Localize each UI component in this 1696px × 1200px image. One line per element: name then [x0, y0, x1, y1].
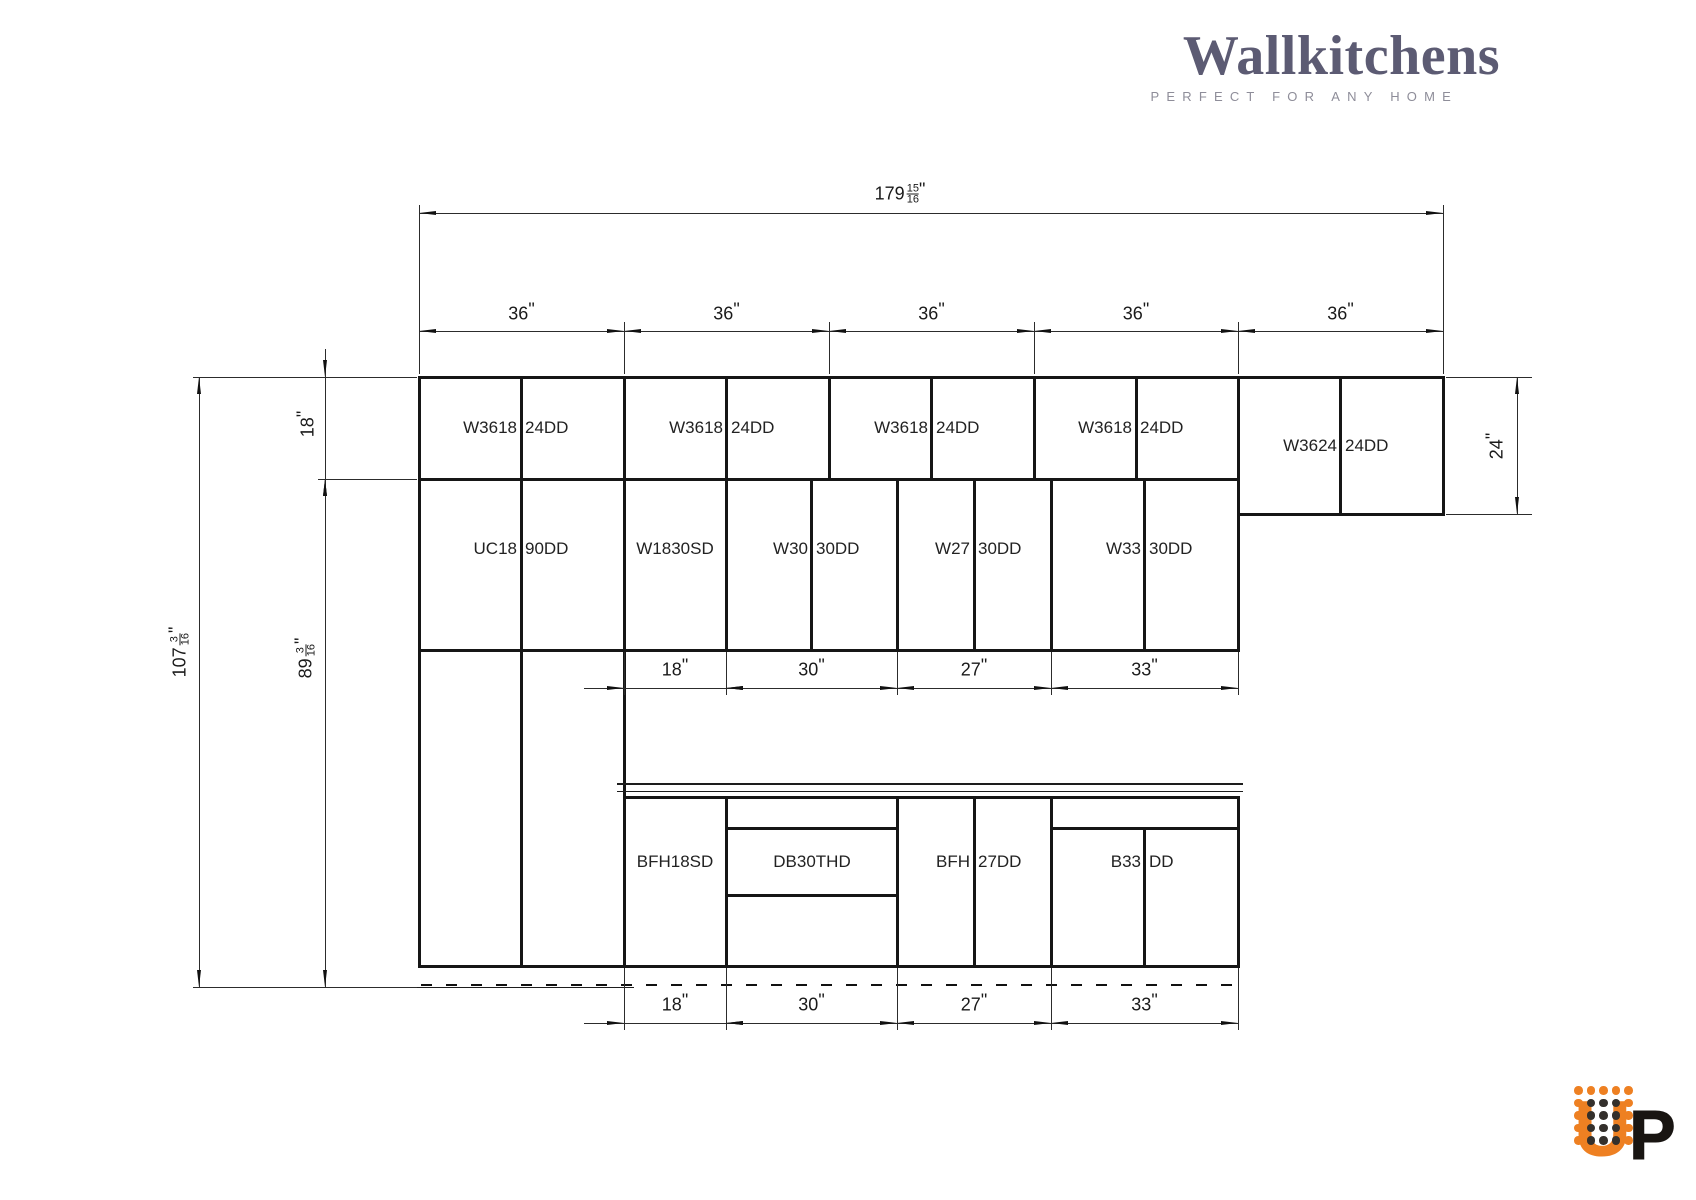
- up-logo-dot: [1612, 1111, 1621, 1120]
- cabinet-label: W30: [648, 539, 808, 559]
- dimension-arrow: [1515, 377, 1519, 394]
- dimension-arrow: [726, 1021, 743, 1025]
- dimension-arrow: [1221, 686, 1238, 690]
- cabinet-door-divider: [1143, 479, 1146, 650]
- up-logo-dot: [1574, 1136, 1583, 1145]
- dimension-arrow: [1426, 329, 1443, 333]
- countertop-line: [617, 783, 1243, 785]
- cabinet-label: 24DD: [1140, 418, 1300, 438]
- dimension-line: [419, 213, 1443, 214]
- dimension-arrow: [726, 686, 743, 690]
- extension-line: [199, 377, 200, 987]
- cabinet-label: W3618: [768, 418, 928, 438]
- dimension-arrow: [1034, 686, 1051, 690]
- cabinet-box: [623, 796, 728, 968]
- dimension-arrow: [1051, 1021, 1068, 1025]
- countertop-line: [617, 791, 1243, 792]
- up-logo-dot: [1599, 1099, 1608, 1108]
- cabinet-label: W3618: [563, 418, 723, 438]
- up-logo-dot: [1587, 1124, 1596, 1133]
- up-logo-dot: [1612, 1124, 1621, 1133]
- dimension-arrow: [323, 360, 327, 377]
- cabinet-door-divider: [520, 377, 523, 966]
- cabinet-label: DD: [1149, 852, 1309, 872]
- dimension-arrow: [323, 970, 327, 987]
- dimension-arrow: [1017, 329, 1034, 333]
- up-logo-dot: [1574, 1086, 1583, 1095]
- cabinet-door-divider: [1339, 377, 1342, 514]
- dimension-arrow: [897, 1021, 914, 1025]
- dimension-arrow: [607, 329, 624, 333]
- dimension-arrow: [812, 329, 829, 333]
- up-logo-dot: [1612, 1086, 1621, 1095]
- cabinet-label: UC18: [357, 539, 517, 559]
- cabinet-door-divider: [810, 479, 813, 650]
- cabinet-label: 30DD: [1149, 539, 1309, 559]
- up-logo-dot: [1599, 1111, 1608, 1120]
- cabinet-label: W3624: [1177, 436, 1337, 456]
- up-logo-dot: [1587, 1086, 1596, 1095]
- cabinet-door-divider: [973, 797, 976, 966]
- dimension-arrow: [897, 686, 914, 690]
- cabinet-label: BFH: [810, 852, 970, 872]
- dimension-arrow: [607, 1021, 624, 1025]
- up-logo-dot: [1599, 1086, 1608, 1095]
- dimension-arrow: [1238, 329, 1255, 333]
- dimension-arrow: [829, 329, 846, 333]
- dimension-arrow: [1051, 686, 1068, 690]
- page: { "brand": { "name": "Wallkitchens", "ta…: [0, 0, 1696, 1200]
- up-logo-dot: [1624, 1111, 1633, 1120]
- dimension-arrow: [197, 970, 201, 987]
- extension-line: [1517, 377, 1518, 514]
- cabinet-label: W33: [981, 539, 1141, 559]
- extension-line: [419, 205, 420, 374]
- cabinet-door-divider: [1143, 828, 1146, 966]
- cabinet-door-divider: [973, 479, 976, 650]
- extension-line: [325, 377, 326, 479]
- dimension-line: [193, 987, 417, 988]
- up-logo-dot: [1574, 1124, 1583, 1133]
- up-logo-dot: [1624, 1124, 1633, 1133]
- dimension-arrow: [419, 329, 436, 333]
- up-logo-dot: [1587, 1099, 1596, 1108]
- dimension-arrow: [1221, 1021, 1238, 1025]
- cabinet-label: 24DD: [1345, 436, 1505, 456]
- up-logo-dot: [1574, 1111, 1583, 1120]
- up-logo-dot: [1599, 1124, 1608, 1133]
- up-logo-dot: [1624, 1099, 1633, 1108]
- cabinet-label: W3618: [972, 418, 1132, 438]
- up-logo-dot: [1624, 1086, 1633, 1095]
- up-logo-dot: [1587, 1111, 1596, 1120]
- dimension-arrow: [607, 686, 624, 690]
- cabinet-door-divider: [1135, 377, 1138, 479]
- dimension-arrow: [419, 211, 436, 215]
- cabinet-door-divider: [725, 377, 728, 479]
- cabinet-label: W3618: [357, 418, 517, 438]
- cabinet-box: [725, 796, 899, 968]
- cabinet-drawer-line: [419, 478, 624, 481]
- cabinet-drawer-line: [419, 649, 624, 652]
- dimension-arrow: [624, 329, 641, 333]
- cabinet-label: W27: [810, 539, 970, 559]
- up-logo-dot: [1574, 1099, 1583, 1108]
- dimension-arrow: [1034, 329, 1051, 333]
- dimension-arrow: [1034, 1021, 1051, 1025]
- cabinet-box: [623, 478, 728, 652]
- extension-line: [325, 479, 326, 987]
- up-logo-dots: [1563, 1056, 1696, 1191]
- dimension-line: [419, 331, 1443, 332]
- dimension-arrow: [1515, 497, 1519, 514]
- dimension-line: [193, 377, 417, 378]
- cabinet-drawer-line: [726, 894, 897, 897]
- cabinet-door-divider: [930, 377, 933, 479]
- dimension-arrow: [323, 479, 327, 496]
- up-logo-dot: [1587, 1136, 1596, 1145]
- dimension-line: [1446, 514, 1532, 515]
- cabinet-drawer-line: [1051, 827, 1238, 830]
- cabinet-drawer-line: [726, 827, 897, 830]
- up-logo: U P: [1563, 1056, 1696, 1191]
- up-logo-dot: [1599, 1136, 1608, 1145]
- dimension-arrow: [1426, 211, 1443, 215]
- brand-tagline: PERFECT FOR ANY HOME: [1151, 89, 1501, 104]
- up-logo-dot: [1612, 1099, 1621, 1108]
- brand-wordmark: Wallkitchens: [1151, 26, 1501, 86]
- up-logo-dot: [1624, 1136, 1633, 1145]
- dimension-arrow: [1221, 329, 1238, 333]
- dimension-line: [1446, 377, 1532, 378]
- toe-kick-dashed-line: [421, 984, 1238, 986]
- dimension-arrow: [197, 377, 201, 394]
- dimension-line: [318, 479, 417, 480]
- cabinet-label: B33: [981, 852, 1141, 872]
- up-logo-dot: [1612, 1136, 1621, 1145]
- extension-line: [1443, 205, 1444, 374]
- dimension-arrow: [880, 686, 897, 690]
- dimension-arrow: [880, 1021, 897, 1025]
- brand-logo: Wallkitchens PERFECT FOR ANY HOME: [1151, 26, 1501, 104]
